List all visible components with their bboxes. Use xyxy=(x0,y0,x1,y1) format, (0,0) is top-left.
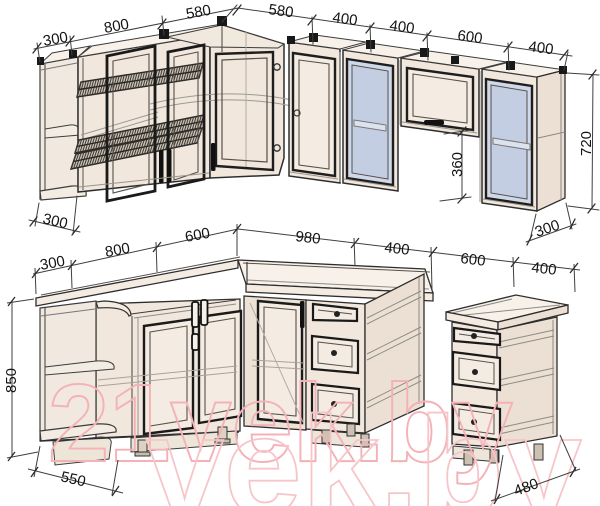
svg-text:400: 400 xyxy=(331,9,358,29)
svg-text:980: 980 xyxy=(295,228,322,248)
svg-text:720: 720 xyxy=(578,131,595,156)
svg-text:400: 400 xyxy=(388,17,415,37)
svg-text:400: 400 xyxy=(527,38,554,58)
svg-text:580: 580 xyxy=(267,1,294,21)
svg-text:400: 400 xyxy=(531,259,558,279)
svg-text:360: 360 xyxy=(449,152,466,177)
svg-text:600: 600 xyxy=(460,250,487,270)
svg-text:850: 850 xyxy=(3,368,20,393)
svg-text:600: 600 xyxy=(456,27,483,47)
svg-text:400: 400 xyxy=(384,239,411,259)
